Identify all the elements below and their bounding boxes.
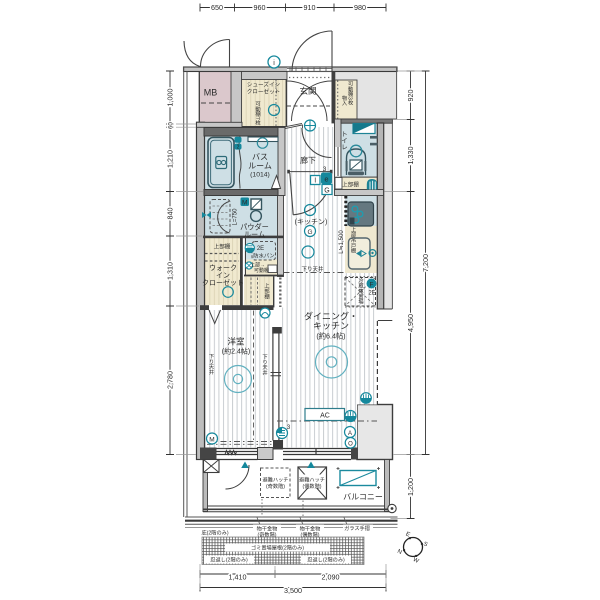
svg-text:960: 960 (254, 3, 266, 12)
svg-text:O: O (348, 442, 353, 448)
svg-text:(1014): (1014) (250, 172, 270, 179)
svg-text:(約2.4帖): (約2.4帖) (222, 347, 250, 356)
svg-text:7,200: 7,200 (421, 254, 430, 272)
svg-text:1,330: 1,330 (406, 147, 415, 165)
svg-text:庇(2階のみ): 庇(2階のみ) (201, 529, 228, 537)
svg-text:L=750: L=750 (233, 208, 239, 226)
svg-text:バルコニー: バルコニー (343, 493, 383, 502)
svg-text:(奇数階): (奇数階) (266, 482, 285, 490)
svg-text:下り天井: 下り天井 (261, 354, 268, 377)
svg-text:上部吊戸棚: 上部吊戸棚 (350, 225, 357, 254)
svg-text:2,090: 2,090 (322, 573, 340, 582)
svg-text:下り天井: 下り天井 (208, 353, 215, 376)
svg-text:4,950: 4,950 (406, 314, 415, 332)
svg-text:ウォーク: ウォーク (209, 264, 237, 272)
svg-text:2E: 2E (257, 246, 264, 252)
svg-text:(キッチン): (キッチン) (295, 218, 328, 226)
svg-text:防水パン: 防水パン (253, 252, 274, 260)
svg-text:2: 2 (237, 145, 240, 151)
svg-text:M: M (209, 436, 214, 443)
svg-text:(約6.4帖): (約6.4帖) (316, 332, 345, 341)
svg-text:シューズイン: シューズイン (247, 81, 281, 89)
svg-text:ダイニング・: ダイニング・ (304, 311, 358, 322)
svg-text:上部棚: 上部棚 (214, 243, 231, 251)
svg-text:バス: バス (252, 153, 268, 162)
svg-text:980: 980 (354, 3, 366, 12)
svg-text:可動棚7枚: 可動棚7枚 (254, 101, 261, 127)
svg-text:物干金物: 物干金物 (257, 525, 278, 533)
svg-text:60: 60 (168, 122, 175, 129)
svg-text:1,210: 1,210 (166, 150, 175, 168)
svg-text:910: 910 (304, 3, 316, 12)
svg-text:3: 3 (323, 166, 327, 173)
svg-text:上部棚: 上部棚 (263, 282, 270, 301)
svg-text:M: M (242, 199, 247, 206)
svg-text:920: 920 (406, 90, 415, 102)
svg-text:クローゼット: クローゼット (202, 278, 244, 287)
svg-text:ルーム: ルーム (244, 230, 265, 239)
svg-text:クローゼット: クローゼット (247, 88, 281, 96)
svg-text:ルーム: ルーム (248, 162, 272, 171)
svg-text:忍返し(2階のみ): 忍返し(2階のみ) (307, 556, 345, 564)
svg-text:650: 650 (211, 3, 223, 12)
svg-text:F: F (370, 281, 374, 288)
svg-text:ゴミ置場屋根(2階のみ): ゴミ置場屋根(2階のみ) (251, 544, 304, 552)
svg-text:1,410: 1,410 (229, 573, 247, 582)
svg-text:G: G (324, 188, 329, 195)
svg-text:L≒1,500: L≒1,500 (339, 230, 345, 254)
svg-text:キッチン: キッチン (313, 321, 349, 331)
svg-text:廊下: 廊下 (300, 155, 316, 165)
svg-text:1,000: 1,000 (166, 89, 175, 107)
svg-text:AC: AC (320, 413, 330, 420)
svg-text:(偶数階): (偶数階) (302, 482, 321, 490)
svg-text:1,310: 1,310 (166, 262, 175, 280)
svg-text:避難ハッチ: 避難ハッチ (299, 476, 325, 484)
svg-text:上部棚: 上部棚 (342, 181, 359, 189)
svg-text:(奇数階): (奇数階) (257, 531, 276, 539)
svg-text:イン: イン (216, 273, 230, 280)
svg-text:下り天井: 下り天井 (301, 265, 324, 273)
svg-text:3,500: 3,500 (284, 586, 302, 595)
svg-text:可動棚: 可動棚 (254, 267, 269, 274)
svg-text:洋室: 洋室 (227, 337, 245, 347)
svg-text:避難ハッチ: 避難ハッチ (263, 476, 289, 484)
svg-text:840: 840 (166, 208, 175, 220)
svg-text:MB: MB (204, 88, 218, 98)
svg-text:I: I (314, 178, 316, 185)
svg-text:2E: 2E (368, 291, 375, 297)
svg-text:玄関: 玄関 (299, 86, 316, 96)
svg-text:1,200: 1,200 (406, 478, 415, 496)
svg-text:忍返し(2階のみ): 忍返し(2階のみ) (210, 556, 248, 564)
svg-text:冷蔵庫置場: 冷蔵庫置場 (357, 276, 364, 305)
svg-text:e: e (324, 175, 328, 184)
svg-text:物干金物: 物干金物 (300, 525, 321, 533)
svg-text:A: A (348, 431, 352, 437)
svg-text:可動棚3枚: 可動棚3枚 (347, 81, 354, 107)
svg-text:ガラス手摺: ガラス手摺 (344, 524, 370, 532)
svg-text:G: G (307, 229, 312, 236)
svg-text:(偶数階): (偶数階) (300, 531, 319, 539)
svg-text:2,780: 2,780 (166, 371, 175, 389)
